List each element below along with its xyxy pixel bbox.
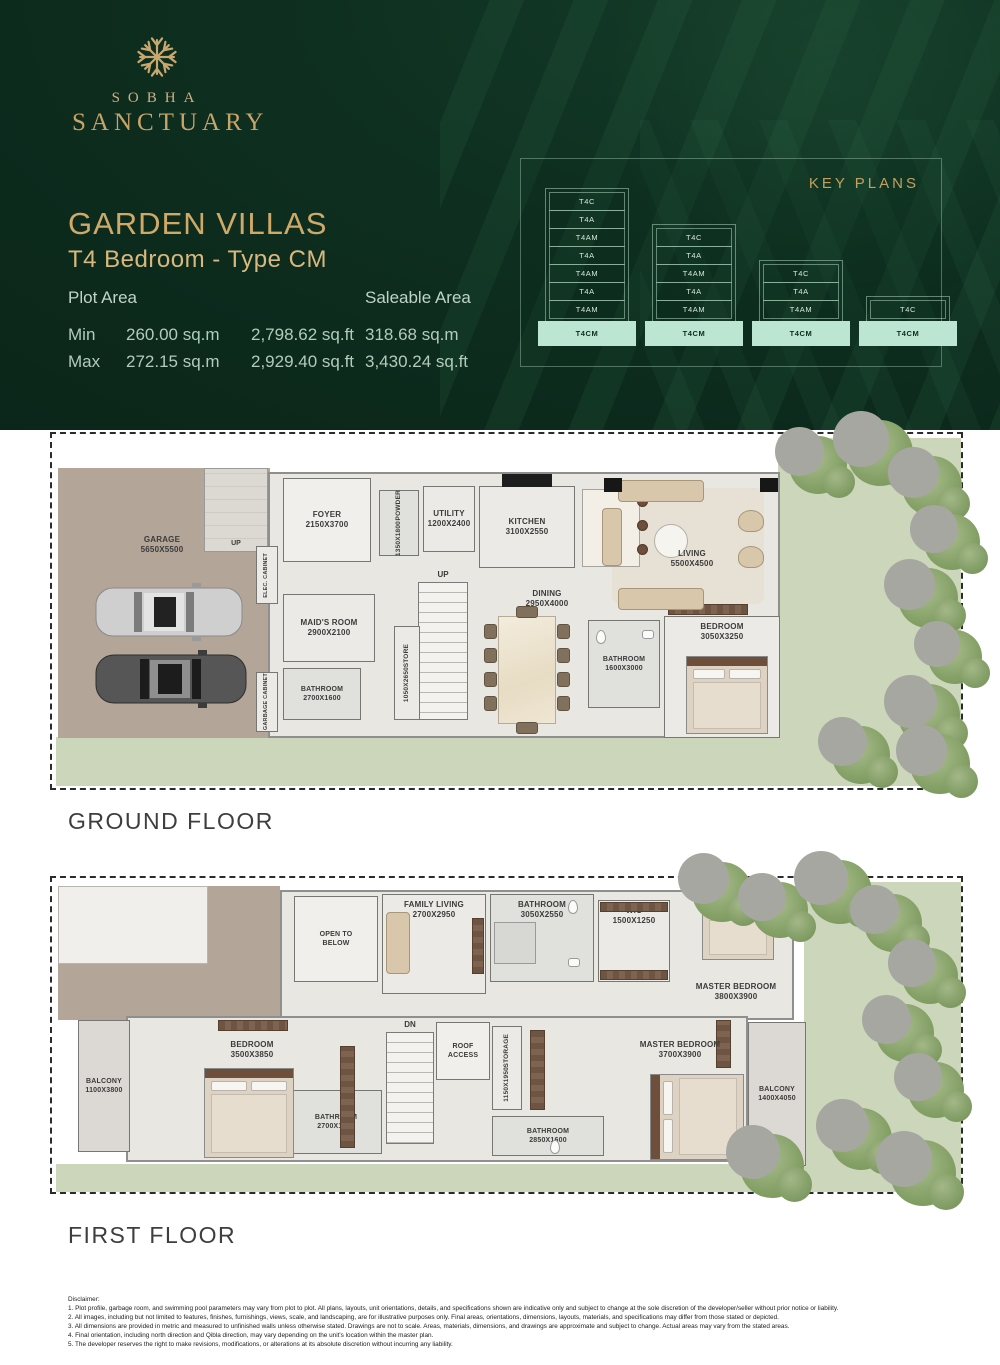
wardrobe-icon — [600, 970, 668, 980]
wardrobe-icon — [600, 902, 668, 912]
sink-icon — [642, 630, 654, 639]
cabinet-icon — [472, 918, 484, 974]
staircase-dn — [386, 1032, 434, 1144]
room-dim: 2700X2950 — [413, 910, 456, 920]
key-plan-stack-3: T4C T4A T4AM T4CM — [759, 260, 843, 342]
stairs-dn-label: DN — [386, 1020, 434, 1029]
unit-cell: T4A — [656, 246, 732, 265]
unit-cell: T4AM — [549, 264, 625, 283]
disclaimer-line: 4. Final orientation, including north di… — [68, 1332, 948, 1341]
chair-icon — [516, 722, 538, 734]
room-dim: 1600X3000 — [605, 664, 643, 673]
room-label: BEDROOM — [700, 622, 743, 632]
room-dim: 1150X1950 — [503, 1067, 512, 1102]
unit-cell: T4A — [549, 246, 625, 265]
roof-panel — [58, 886, 208, 964]
room-dim: 5650X5500 — [141, 545, 184, 555]
room-label: GARAGE — [144, 535, 180, 545]
first-floor-plan: OPEN TO BELOW FAMILY LIVING 2700X2950 BA… — [50, 876, 963, 1194]
wardrobe-icon — [218, 1020, 288, 1031]
unit-cell: T4A — [549, 210, 625, 229]
room-open-to-below: OPEN TO BELOW — [294, 896, 378, 982]
saleable-sqm: 318.68 sq.m — [365, 321, 471, 348]
room-living: LIVING 5500X4500 — [637, 546, 747, 572]
saleable-sqft: 3,430.24 sq.ft — [365, 348, 471, 375]
key-plan-stack-2: T4C T4A T4AM T4A T4AM T4CM — [652, 224, 736, 342]
room-label: BATHROOM — [301, 685, 343, 694]
room-bathroom-3: BATHROOM 2850X1600 — [492, 1116, 604, 1156]
room-label: ELEC. CABINET — [263, 553, 270, 598]
room-dim: 1200X2400 — [428, 519, 471, 529]
tree-icon — [890, 1140, 956, 1206]
plot-area-min-row: Min 260.00 sq.m 2,798.62 sq.ft — [68, 321, 354, 348]
plot-max-key: Max — [68, 348, 126, 375]
room-dim: 2700X1600 — [303, 694, 341, 703]
plot-max-sqft: 2,929.40 sq.ft — [251, 348, 354, 375]
chair-icon — [557, 624, 570, 639]
disclaimer-line: 3. All dimensions are provided in metric… — [68, 1323, 948, 1332]
wardrobe-icon — [530, 1030, 545, 1110]
room-dim: 3050X3250 — [701, 632, 744, 642]
room-dining: DINING 2950X4000 — [482, 586, 612, 612]
unit-cell: T4AM — [763, 300, 839, 319]
room-foyer: FOYER 2150X3700 — [283, 478, 371, 562]
chair-icon — [484, 672, 497, 687]
room-kitchen: KITCHEN 3100X2550 — [479, 486, 575, 568]
plot-min-sqft: 2,798.62 sq.ft — [251, 321, 354, 348]
ramp-up-label: UP — [231, 540, 241, 547]
room-dim: 3050X2550 — [521, 910, 564, 920]
garden-strip — [56, 1164, 961, 1192]
tv-icon — [604, 478, 622, 492]
chair-icon — [557, 696, 570, 711]
brand-name-top: SOBHA — [72, 90, 242, 107]
bed-icon — [204, 1068, 294, 1158]
toilet-icon — [550, 1140, 560, 1154]
brochure-page: SOBHA SANCTUARY GARDEN VILLAS T4 Bedroom… — [0, 0, 1000, 1365]
garden-strip — [56, 737, 778, 786]
brand-name-bottom: SANCTUARY — [72, 109, 242, 137]
room-dim: 2950X4000 — [526, 599, 569, 609]
unit-cell: T4AM — [656, 300, 732, 319]
room-store: STORE 1050X2650 — [394, 626, 420, 720]
room-label: UTILITY — [433, 509, 465, 519]
chair-icon — [557, 672, 570, 687]
ground-floor-plan: UP GARAGE 5650X5500 FOYER 2150 — [50, 432, 963, 790]
first-floor-label: FIRST FLOOR — [68, 1222, 236, 1249]
unit-cell: T4A — [656, 282, 732, 301]
room-maids-room: MAID'S ROOM 2900X2100 — [283, 594, 375, 662]
room-label: LIVING — [678, 549, 706, 559]
room-dim: 3500X3850 — [231, 1050, 274, 1060]
tree-icon — [910, 734, 970, 794]
disclaimer-line: 1. Plot profile, garbage room, and swimm… — [68, 1305, 948, 1314]
tree-icon — [902, 948, 958, 1004]
room-bathroom-2: BATHROOM 2700X1600 — [290, 1090, 382, 1154]
unit-cell: T4AM — [656, 264, 732, 283]
bed-icon — [686, 656, 768, 734]
room-dim: 1500X1250 — [613, 916, 656, 926]
room-label: BATHROOM — [527, 1127, 569, 1136]
unit-cell-highlighted: T4CM — [645, 321, 743, 346]
unit-cell: T4AM — [549, 228, 625, 247]
wardrobe-icon — [340, 1046, 355, 1148]
room-label: GARBAGE CABINET — [263, 673, 270, 730]
room-label: BEDROOM — [230, 1040, 273, 1050]
room-garage: GARAGE 5650X5500 — [92, 530, 232, 560]
room-dim: 5500X4500 — [671, 559, 714, 569]
room-label: MASTER BEDROOM — [640, 1040, 721, 1050]
room-bathroom-1: BATHROOM 2700X1600 — [283, 668, 361, 720]
key-plans-panel: KEY PLANS T4C T4A T4AM T4A T4AM T4A T4AM… — [520, 158, 942, 367]
room-garbage-cabinet: GARBAGE CABINET — [256, 672, 278, 732]
toilet-icon — [568, 900, 578, 914]
chair-icon — [484, 648, 497, 663]
car-icon — [94, 582, 244, 642]
sofa-icon — [386, 912, 410, 974]
shower-icon — [494, 922, 536, 964]
unit-cell: T4AM — [549, 300, 625, 319]
room-label: KITCHEN — [509, 517, 546, 527]
room-label: ROOF ACCESS — [443, 1042, 483, 1060]
tree-icon — [740, 1134, 804, 1198]
room-master-bedroom-2: MASTER BEDROOM 3700X3900 — [618, 1036, 742, 1064]
sink-icon — [568, 958, 580, 967]
room-roof-access: ROOF ACCESS — [436, 1022, 490, 1080]
room-label: FOYER — [313, 510, 342, 520]
sofa-icon — [618, 588, 704, 610]
room-dim: 2150X3700 — [306, 520, 349, 530]
key-plans-stacks: T4C T4A T4AM T4A T4AM T4A T4AM T4CM T4C … — [545, 188, 950, 342]
page-title: GARDEN VILLAS — [68, 206, 327, 242]
saleable-area-block: Saleable Area 318.68 sq.m 3,430.24 sq.ft — [365, 288, 471, 375]
room-bedroom: BEDROOM 3500X3850 — [192, 1036, 312, 1064]
key-plan-stack-4: T4C T4CM — [866, 296, 950, 342]
armchair-icon — [738, 510, 764, 532]
disclaimer-line: 2. All images, including but not limited… — [68, 1314, 948, 1323]
unit-cell: T4C — [763, 264, 839, 283]
stool-icon — [637, 520, 648, 531]
plot-area-label: Plot Area — [68, 288, 354, 308]
room-dim: 1100X3800 — [85, 1086, 122, 1095]
room-dim: 1050X2650 — [403, 667, 412, 702]
plot-area-max-row: Max 272.15 sq.m 2,929.40 sq.ft — [68, 348, 354, 375]
brand-logo: SOBHA SANCTUARY — [72, 30, 242, 137]
room-dim: 3700X3900 — [659, 1050, 702, 1060]
plot-area-block: Plot Area Min 260.00 sq.m 2,798.62 sq.ft… — [68, 288, 354, 375]
room-dim: 2900X2100 — [308, 628, 351, 638]
disclaimer-line: 5. The developer reserves the right to m… — [68, 1341, 948, 1350]
room-dim: 3100X2550 — [506, 527, 549, 537]
chair-icon — [484, 696, 497, 711]
saleable-area-label: Saleable Area — [365, 288, 471, 308]
room-label: MAID'S ROOM — [301, 618, 358, 628]
tv-icon — [760, 478, 778, 492]
stairs-up-label: UP — [418, 570, 468, 579]
cooktop-icon — [502, 474, 552, 487]
tree-icon — [832, 726, 890, 784]
ground-floor-label: GROUND FLOOR — [68, 808, 274, 835]
plot-max-sqm: 272.15 sq.m — [126, 348, 251, 375]
room-storage: STORAGE 1150X1950 — [492, 1026, 522, 1110]
unit-cell: T4A — [763, 282, 839, 301]
disclaimer-block: Disclaimer: 1. Plot profile, garbage roo… — [68, 1296, 948, 1350]
plot-min-sqm: 260.00 sq.m — [126, 321, 251, 348]
unit-cell-highlighted: T4CM — [538, 321, 636, 346]
room-label: OPEN TO BELOW — [306, 930, 366, 948]
room-label: BATHROOM — [603, 655, 645, 664]
chair-icon — [557, 648, 570, 663]
room-label: DINING — [532, 589, 561, 599]
unit-cell-highlighted: T4CM — [859, 321, 957, 346]
chair-icon — [484, 624, 497, 639]
dining-table — [498, 616, 556, 724]
room-elec-cabinet: ELEC. CABINET — [256, 546, 278, 604]
room-label: MASTER BEDROOM — [696, 982, 777, 992]
room-master-bedroom-1: MASTER BEDROOM 3800X3900 — [680, 978, 792, 1006]
tree-icon — [908, 1062, 964, 1118]
tree-icon — [898, 568, 958, 628]
page-subtitle: T4 Bedroom - Type CM — [68, 246, 327, 274]
room-dim: 1400X4050 — [758, 1094, 796, 1103]
disclaimer-title: Disclaimer: — [68, 1296, 948, 1305]
sofa-icon — [618, 480, 704, 502]
tree-branch-icon — [130, 30, 184, 84]
room-powder: POWDER 1350X1800 — [379, 490, 419, 556]
room-label: STORAGE — [503, 1034, 512, 1067]
toilet-icon — [596, 630, 606, 644]
room-label: FAMILY LIVING — [404, 900, 464, 910]
room-dim: 2850X1600 — [529, 1136, 567, 1145]
room-utility: UTILITY 1200X2400 — [423, 486, 475, 552]
room-label: STORE — [403, 644, 412, 667]
tree-icon — [928, 630, 982, 684]
plot-min-key: Min — [68, 321, 126, 348]
room-label: BATHROOM — [518, 900, 566, 910]
room-dim: 3800X3900 — [715, 992, 758, 1002]
sofa-icon — [602, 508, 622, 566]
unit-cell: T4C — [656, 228, 732, 247]
room-balcony-1: BALCONY 1100X3800 — [78, 1020, 130, 1152]
tree-icon — [924, 514, 980, 570]
room-dim: 1350X1800 — [395, 521, 404, 556]
key-plan-stack-1: T4C T4A T4AM T4A T4AM T4A T4AM T4CM — [545, 188, 629, 342]
room-label: BALCONY — [759, 1085, 795, 1094]
staircase-up — [418, 582, 468, 720]
car-icon — [94, 648, 249, 710]
header-banner: SOBHA SANCTUARY GARDEN VILLAS T4 Bedroom… — [0, 0, 1000, 430]
unit-cell: T4C — [549, 192, 625, 211]
unit-cell-highlighted: T4CM — [752, 321, 850, 346]
unit-cell: T4A — [549, 282, 625, 301]
room-label: POWDER — [395, 490, 404, 520]
room-label: BALCONY — [86, 1077, 122, 1086]
unit-cell: T4C — [870, 300, 946, 319]
